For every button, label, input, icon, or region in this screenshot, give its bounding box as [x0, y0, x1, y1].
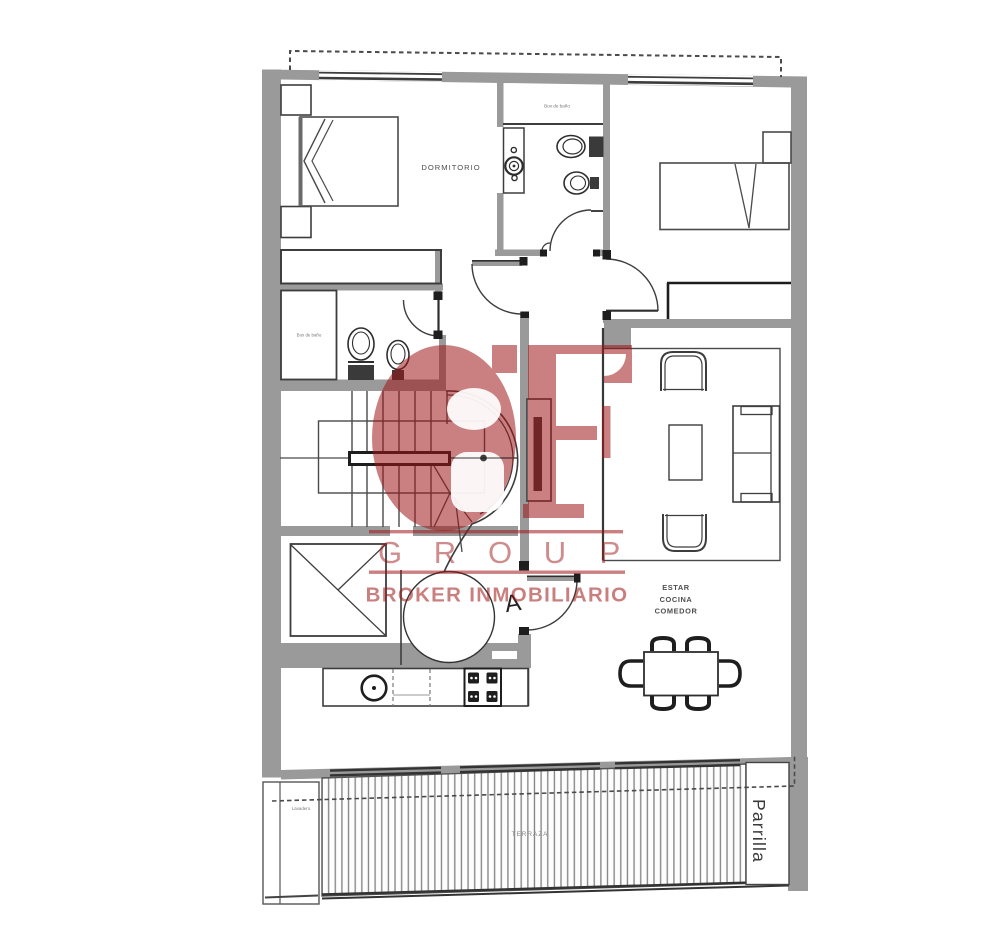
svg-text:O: O: [488, 535, 512, 570]
svg-text:COMEDOR: COMEDOR: [655, 607, 698, 616]
svg-text:U: U: [544, 535, 566, 570]
svg-text:G: G: [378, 535, 402, 570]
svg-text:Lavadero: Lavadero: [292, 806, 311, 811]
svg-text:COCINA: COCINA: [660, 595, 693, 604]
svg-text:DORMITORIO: DORMITORIO: [421, 163, 480, 172]
svg-text:ESTAR: ESTAR: [662, 583, 690, 592]
svg-text:R: R: [434, 535, 456, 570]
svg-text:P: P: [600, 535, 621, 570]
svg-text:Box de baño: Box de baño: [297, 333, 322, 338]
svg-text:Parrilla: Parrilla: [749, 799, 769, 863]
svg-text:BROKER INMOBILIARIO: BROKER INMOBILIARIO: [366, 584, 629, 607]
svg-text:TERRAZA: TERRAZA: [512, 831, 549, 838]
svg-text:Box de baño: Box de baño: [544, 104, 570, 109]
